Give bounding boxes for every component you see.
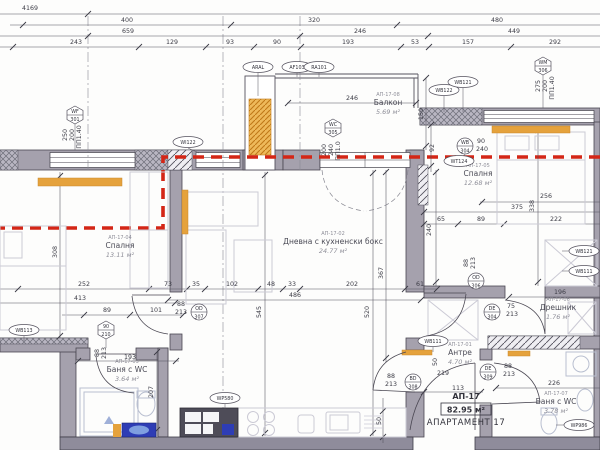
- walls-bottom: [60, 437, 600, 450]
- radiator-right-bedroom: [492, 126, 570, 133]
- bath-fixtures: [80, 352, 596, 436]
- tag-hex-bottom: 210: [101, 332, 110, 338]
- tag-oval-text: RA101: [311, 65, 327, 71]
- tag-circle: OD306: [468, 273, 484, 289]
- room-name: Спалня: [464, 169, 493, 178]
- room-label: АП-17-03Баня с WC3.64 м²: [107, 359, 148, 383]
- room-label: АП-17-05Спалня12.68 м²: [464, 163, 493, 187]
- dimension-text: 157: [462, 39, 474, 46]
- tag-oval-text: WB113: [15, 328, 32, 334]
- towel-rail: [113, 424, 121, 437]
- tag-circle-top: WB: [461, 140, 469, 146]
- dimension-text: 50: [376, 417, 383, 425]
- room-name: Баня с WC: [536, 397, 577, 406]
- tag-oval-text: WB121: [575, 249, 592, 255]
- dimension-text: 213: [470, 257, 477, 269]
- tag-circle-bottom: 307: [194, 314, 203, 320]
- dimension-text: 33: [288, 281, 296, 288]
- dimension-text: ПП1.40: [76, 125, 83, 149]
- dimension-text: 520: [364, 306, 371, 318]
- tag-oval: WB113: [9, 325, 39, 336]
- windows: [50, 111, 594, 168]
- dimension-text: 213: [385, 381, 397, 388]
- room-name: Антре: [448, 348, 472, 357]
- apartment-area: 82.95 м²: [447, 406, 486, 415]
- room-label: АП-17-08Балкон5.69 м²: [374, 92, 403, 116]
- tag-oval: WP986: [564, 420, 594, 431]
- dimension-text: 213: [503, 371, 515, 378]
- bed-left: [0, 226, 66, 330]
- tag-circle: BD308: [405, 374, 421, 390]
- dimension-text: 213: [506, 311, 518, 318]
- radiator-closet: [508, 351, 530, 356]
- tag-oval-text: WB121: [454, 80, 471, 86]
- tag-oval-text: WB122: [435, 88, 452, 94]
- tag-oval: WB121: [569, 246, 599, 257]
- door-bedroom-right: [424, 293, 466, 336]
- tag-oval-text: WP986: [571, 423, 588, 429]
- dimension-ticks: [10, 11, 541, 440]
- apartment-name: АПАРТАМЕНТ 17: [427, 418, 505, 428]
- kitchen-cabinet-dark: [180, 408, 238, 437]
- dimension-text: 375: [511, 204, 523, 211]
- room-area: 4.70 м²: [448, 358, 472, 366]
- dimension-text: 88: [94, 349, 101, 357]
- room-area: 24.77 м²: [319, 247, 348, 255]
- dimension-text: 367: [378, 267, 385, 279]
- tag-oval: WB111: [569, 266, 599, 277]
- tag-circle-bottom: 308: [408, 384, 417, 390]
- vanity-left: [113, 423, 156, 437]
- dimension-text: 53: [411, 39, 419, 46]
- room-label: АП-17-07Баня с WC3.78 м²: [536, 391, 577, 415]
- dimension-text: 75: [507, 303, 515, 310]
- shaft-flue: [249, 99, 271, 155]
- dimension-text: 256: [540, 193, 552, 200]
- tag-oval: WB121: [448, 77, 478, 88]
- room-label: АП-17-06Дрешник1.76 м²: [540, 297, 577, 321]
- dimension-text: 226: [548, 380, 560, 387]
- tag-oval: WT124: [444, 156, 474, 167]
- tag-circle: OD307: [191, 304, 207, 320]
- door-bath-right: [492, 363, 540, 404]
- dimension-text: 50: [432, 358, 439, 366]
- tag-circle-bottom: 306: [471, 283, 480, 289]
- dimension-text: 102: [226, 281, 238, 288]
- dimension-text: 200: [542, 80, 549, 92]
- tag-circle-top: DE: [485, 366, 492, 372]
- dimension-text: 73: [164, 281, 172, 288]
- dimension-text: 246: [354, 28, 366, 35]
- dimension-text: 129: [166, 39, 178, 46]
- tag-oval-text: WT124: [451, 159, 468, 165]
- dimension-text: 150: [418, 108, 425, 120]
- tag-circle-top: OD: [195, 306, 203, 312]
- dimension-text: 196: [554, 289, 566, 296]
- tag-hex-top: WM: [539, 60, 548, 66]
- tag-oval-text: AF103: [289, 65, 304, 71]
- dimension-text: 400: [121, 17, 133, 24]
- tag-hex-top: WC: [329, 122, 338, 128]
- dimension-text: 89: [103, 307, 111, 314]
- tag-oval: WB111: [418, 336, 448, 347]
- dimension-text: 486: [289, 292, 301, 299]
- tag-hexagon: WM306: [535, 57, 551, 75]
- dimension-text: 35: [192, 281, 200, 288]
- dimension-text: 659: [122, 28, 134, 35]
- apartment-code: АП-17: [452, 392, 479, 401]
- dimension-text: 240: [476, 146, 488, 153]
- dishwasher: [222, 424, 234, 435]
- dimension-text: 92: [429, 144, 436, 152]
- dimension-text: 449: [508, 28, 520, 35]
- dimension-text: 250: [62, 129, 69, 141]
- dimension-text: 219: [437, 370, 449, 377]
- tag-hex-top: 90: [103, 324, 109, 330]
- room-name: Спалня: [106, 241, 135, 250]
- dimension-text: 320: [308, 17, 320, 24]
- tag-hexagon: WF301: [67, 106, 83, 124]
- room-area: 12.68 м²: [464, 179, 493, 187]
- tag-oval-text: ARAL: [252, 65, 265, 71]
- dimension-text: 240: [328, 144, 335, 156]
- dimension-text: 213: [101, 347, 108, 359]
- room-name: Дневна с кухненски бокс: [283, 237, 383, 246]
- room-label: АП-17-04Спалня13.11 м²: [106, 235, 135, 259]
- tag-oval-text: WB111: [424, 339, 441, 345]
- dimension-text: 193: [342, 39, 354, 46]
- floor-plan: 4169400320480659246449243129939019353157…: [0, 0, 600, 450]
- dimension-text: 213: [175, 309, 187, 316]
- dimension-text: 308: [52, 246, 59, 258]
- room-area: 3.78 м²: [544, 407, 568, 415]
- dimension-text: 480: [491, 17, 503, 24]
- dimension-text: 338: [529, 200, 536, 212]
- room-area: 13.11 м²: [106, 251, 135, 259]
- dimension-text: 200: [321, 144, 328, 156]
- dimension-text: 4169: [22, 5, 38, 12]
- tag-hex-bottom: 306: [538, 68, 547, 74]
- dimension-text: 275: [535, 80, 542, 92]
- dimension-text: 88: [463, 259, 470, 267]
- dimension-text: 413: [74, 295, 86, 302]
- tag-hexagon: WC305: [325, 119, 341, 137]
- tag-oval-text: WP580: [217, 396, 234, 402]
- room-name: Дрешник: [540, 303, 577, 312]
- tag-circle-top: OD: [472, 275, 480, 281]
- room-name: Балкон: [374, 98, 403, 107]
- floor-plan-page: 4169400320480659246449243129939019353157…: [0, 0, 600, 450]
- tag-circle-bottom: 304: [460, 148, 469, 154]
- radiator-living: [182, 190, 188, 234]
- tag-oval: RA101: [304, 62, 334, 73]
- room-label: АП-17-02Дневна с кухненски бокс24.77 м²: [283, 231, 383, 255]
- dimension-text: 545: [256, 306, 263, 318]
- dimension-text: 90: [477, 138, 485, 145]
- door-bedroom-left: [132, 295, 170, 334]
- room-area: 3.64 м²: [115, 375, 139, 383]
- washbasin-right: [577, 389, 593, 411]
- tag-oval-text: WI122: [180, 140, 195, 146]
- tag-circle: WB304: [457, 138, 473, 154]
- dimension-text: 202: [346, 281, 358, 288]
- tag-oval: WI122: [173, 137, 203, 148]
- tag-circle: DE309: [480, 364, 496, 380]
- dimension-text: 65: [437, 216, 445, 223]
- dimension-text: ПП1.40: [549, 76, 556, 100]
- tag-circle-top: DE: [489, 306, 496, 312]
- tag-circle-top: BD: [410, 376, 417, 382]
- dimension-text: 252: [78, 281, 90, 288]
- tag-hex-bottom: 301: [70, 117, 79, 123]
- room-area: 1.76 м²: [546, 313, 570, 321]
- tag-oval: ARAL: [243, 62, 273, 73]
- dimension-text: 88: [387, 373, 395, 380]
- tag-oval: WP580: [210, 393, 240, 404]
- apartment-title-block: АП-17 82.95 м² АПАРТАМЕНТ 17: [427, 392, 505, 428]
- balcony-door-swing: [322, 170, 408, 211]
- dimension-text: 93: [226, 39, 234, 46]
- dimension-text: 90: [273, 39, 281, 46]
- dimension-text: 89: [477, 216, 485, 223]
- dimension-text: 88: [504, 363, 512, 370]
- dimension-text: 101: [150, 307, 162, 314]
- room-name: Баня с WC: [107, 365, 148, 374]
- dimension-text: 88: [177, 301, 185, 308]
- radiator-hall: [402, 350, 432, 355]
- tag-circle-bottom: 309: [483, 374, 492, 380]
- dimension-text: 207: [148, 386, 155, 398]
- tag-circle-bottom: 304: [487, 314, 496, 320]
- tag-hex-top: WF: [71, 109, 79, 115]
- dimension-text: 246: [346, 95, 358, 102]
- radiator-left-bedroom: [38, 178, 122, 186]
- dimension-text: 292: [549, 39, 561, 46]
- room-label: АП-17-01Антре4.70 м²: [448, 342, 472, 366]
- room-area: 5.69 м²: [376, 108, 400, 116]
- dimension-text: 61: [416, 281, 424, 288]
- tag-hex-bottom: 305: [328, 130, 337, 136]
- tag-hexagon: 90210: [98, 321, 114, 339]
- dimension-text: 48: [267, 281, 275, 288]
- dimension-text: 113: [452, 385, 464, 392]
- dimension-text: 222: [550, 216, 562, 223]
- sofa: [186, 192, 258, 226]
- dimension-text: ПП1.0: [335, 141, 342, 160]
- dimension-text: 240: [426, 224, 433, 236]
- dimension-text: 200: [69, 129, 76, 141]
- dimension-text: 243: [70, 39, 82, 46]
- tag-oval-text: WB111: [575, 269, 592, 275]
- tag-circle: DE304: [484, 304, 500, 320]
